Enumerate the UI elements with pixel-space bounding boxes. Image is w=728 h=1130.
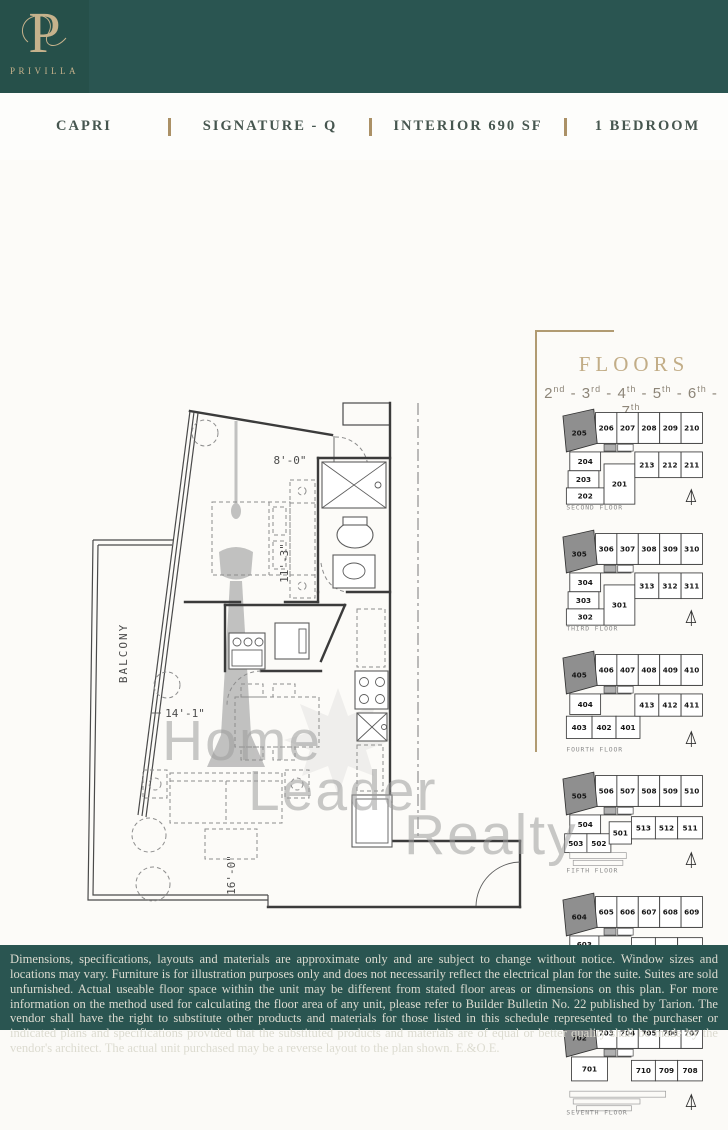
coffee-table [205, 829, 257, 859]
monogram-swash-icon [14, 8, 84, 68]
keyplan-unit-number: 212 [662, 460, 677, 469]
toilet [337, 522, 373, 548]
keyplan-unit-number: 511 [682, 823, 697, 832]
keyplan-unit-number: 513 [636, 823, 651, 832]
fridge [352, 795, 392, 847]
dim-bedroom: 11'-3" [278, 543, 291, 583]
keyplan-unit-number: 312 [662, 581, 677, 590]
header-band: P PRIVILLA [0, 0, 728, 93]
keyplan-unit-number: 503 [568, 839, 583, 848]
keyplan-unit-number: 504 [578, 820, 593, 829]
cn-tower-watermark-icon [207, 421, 265, 767]
keyplan-unit-number: 410 [684, 666, 699, 675]
lounge-chair [136, 867, 170, 901]
keyplan-unit-number: 311 [684, 581, 699, 590]
bedroom [185, 480, 318, 602]
brand-logo: P PRIVILLA [0, 0, 89, 93]
keyplan-unit-number: 310 [684, 545, 699, 554]
keyplan-unit-number: 209 [663, 424, 678, 433]
keyplan-unit-number: 508 [641, 787, 656, 796]
round-table [154, 672, 180, 698]
keyplan-unit-number: 413 [639, 701, 654, 710]
brand-monogram: P [28, 2, 60, 64]
highlighted-unit-number: 604 [572, 913, 587, 922]
keyplan-unit-number: 501 [613, 828, 628, 837]
main-area: BALCONY [0, 160, 728, 945]
keyplan-unit-number: 306 [599, 545, 614, 554]
unit-floorplan-drawing: BALCONY [85, 395, 535, 970]
balcony-label: BALCONY [117, 623, 130, 683]
floor-keyplan: 306307308309310305304303302301313312311T… [556, 525, 706, 637]
keyplan-unit-number: 202 [578, 492, 593, 501]
keyplan-unit-number: 301 [612, 601, 627, 610]
keyplan-unit-number: 608 [663, 908, 678, 917]
keyplan-unit-number: 509 [663, 787, 678, 796]
keyplan-unit-number: 210 [684, 424, 699, 433]
unit-bedrooms: 1 BEDROOM [567, 118, 728, 135]
keyplan-unit-number: 307 [620, 545, 635, 554]
keyplan-unit-number: 507 [620, 787, 635, 796]
keyplan-unit-number: 404 [578, 700, 593, 709]
keyplan-unit-number: 710 [636, 1066, 651, 1075]
keyplan-unit-number: 402 [596, 723, 611, 732]
unit-area: INTERIOR 690 SF [372, 118, 564, 135]
keyplan-unit-number: 412 [662, 701, 677, 710]
vanity-sink [333, 555, 375, 588]
closet [290, 480, 315, 598]
bathroom [318, 458, 390, 592]
keyplan-unit-number: 211 [684, 460, 699, 469]
keyplan-unit-number: 506 [599, 787, 614, 796]
stove [355, 671, 388, 709]
dim-living-depth: 16'-0" [225, 855, 238, 895]
keyplan-unit-number: 605 [599, 908, 614, 917]
highlighted-unit-number: 405 [572, 671, 587, 680]
keyplan-unit-number: 302 [578, 613, 593, 622]
floors-panel-border [537, 330, 614, 332]
keyplan-unit-number: 403 [572, 723, 587, 732]
keyplan-unit-number: 609 [684, 908, 699, 917]
keyplan-unit-number: 308 [641, 545, 656, 554]
keyplan-unit-number: 203 [576, 475, 591, 484]
floor-name-label: SECOND FLOOR [566, 503, 623, 511]
keyplan-unit-number: 304 [578, 578, 593, 587]
keyplan-unit-number: 407 [620, 666, 635, 675]
keyplan-unit-number: 313 [639, 581, 654, 590]
unit-name: CAPRI [0, 118, 168, 135]
keyplan-unit-number: 406 [599, 666, 614, 675]
dim-entry: 8'-0" [273, 454, 306, 467]
keyplan-unit-number: 701 [582, 1064, 597, 1073]
keyplan-unit-number: 309 [663, 545, 678, 554]
keyplan-unit-number: 510 [684, 787, 699, 796]
floor-keyplan: 506507508509510505504503502501513512511F… [556, 767, 706, 879]
unit-model: SIGNATURE - Q [171, 118, 369, 135]
floor-name-label: SEVENTH FLOOR [566, 1108, 627, 1116]
dim-living-width: 14'-1" [165, 707, 205, 720]
floor-name-label: FOURTH FLOOR [566, 745, 623, 753]
floor-name-label: FIFTH FLOOR [566, 866, 618, 874]
keyplan-unit-number: 607 [641, 908, 656, 917]
highlighted-unit-number: 305 [572, 550, 587, 559]
keyplan-unit-number: 401 [620, 723, 635, 732]
keyplan-unit-number: 708 [682, 1066, 697, 1075]
disclaimer-text: Dimensions, specifications, layouts and … [0, 945, 728, 1030]
keyplan-unit-number: 201 [612, 480, 627, 489]
floorplan-page: { "brand": {"monogram": "P", "name": "PR… [0, 0, 728, 1030]
keyplan-unit-number: 409 [663, 666, 678, 675]
floor-keyplan: 206207208209210205204203202201213212211S… [556, 404, 706, 516]
keyplan-unit-number: 207 [620, 424, 635, 433]
keyplan-unit-number: 411 [684, 701, 699, 710]
floor-keyplan: 406407408409410405404403402401413412411F… [556, 646, 706, 758]
keyplan-unit-number: 502 [591, 839, 606, 848]
keyplan-unit-number: 206 [599, 424, 614, 433]
console [275, 623, 309, 659]
keyplan-unit-number: 606 [620, 908, 635, 917]
lounge-chair [132, 818, 166, 852]
keyplan-unit-number: 709 [659, 1066, 674, 1075]
keyplan-unit-number: 512 [659, 823, 674, 832]
keyplan-unit-number: 204 [578, 457, 593, 466]
keyplan-unit-number: 303 [576, 596, 591, 605]
floors-panel-title: FLOORS [540, 352, 728, 377]
highlighted-unit-number: 205 [572, 429, 587, 438]
spec-title-bar: CAPRI SIGNATURE - Q INTERIOR 690 SF 1 BE… [0, 93, 728, 160]
floor-name-label: THIRD FLOOR [566, 624, 618, 632]
keyplan-unit-number: 408 [641, 666, 656, 675]
kitchen [352, 609, 392, 847]
keyplan-unit-number: 213 [639, 460, 654, 469]
highlighted-unit-number: 505 [572, 792, 587, 801]
keyplan-unit-number: 208 [641, 424, 656, 433]
